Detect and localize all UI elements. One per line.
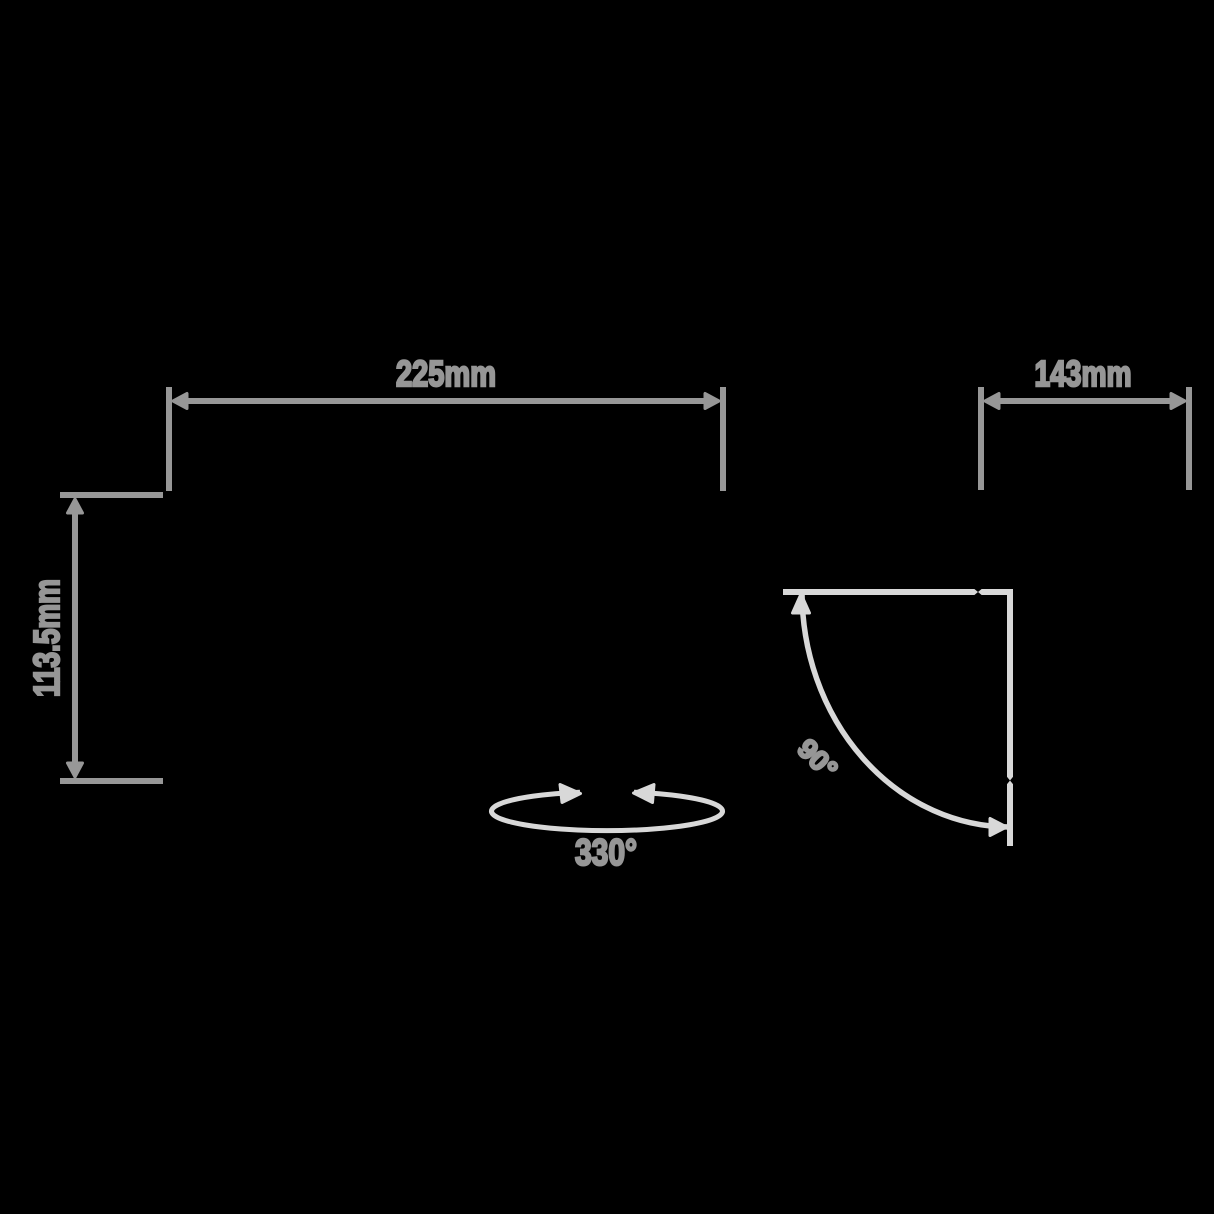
svg-text:113.5mm: 113.5mm — [26, 579, 67, 697]
svg-text:225mm: 225mm — [396, 353, 496, 394]
svg-text:330°: 330° — [575, 832, 637, 873]
svg-text:143mm: 143mm — [1035, 353, 1132, 394]
